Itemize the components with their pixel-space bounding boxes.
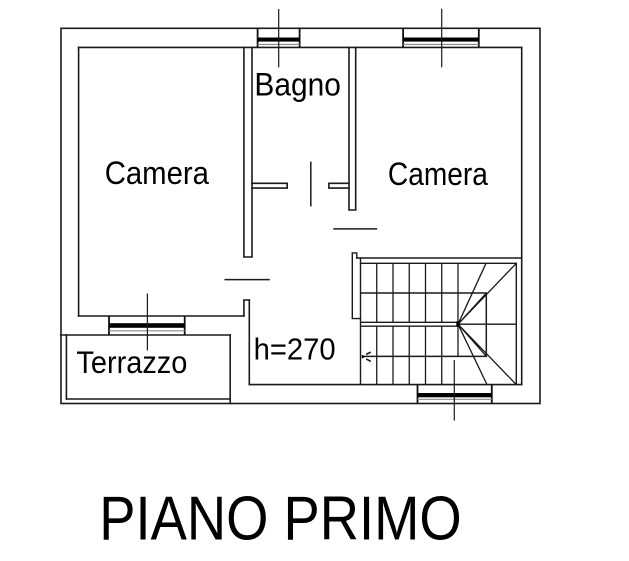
svg-text:Bagno: Bagno [254, 66, 341, 102]
svg-text:Terrazzo: Terrazzo [76, 345, 187, 380]
svg-text:PIANO PRIMO: PIANO PRIMO [99, 483, 461, 553]
svg-text:Camera: Camera [105, 155, 209, 191]
svg-text:Camera: Camera [388, 156, 488, 192]
svg-text:h=270: h=270 [254, 332, 336, 366]
